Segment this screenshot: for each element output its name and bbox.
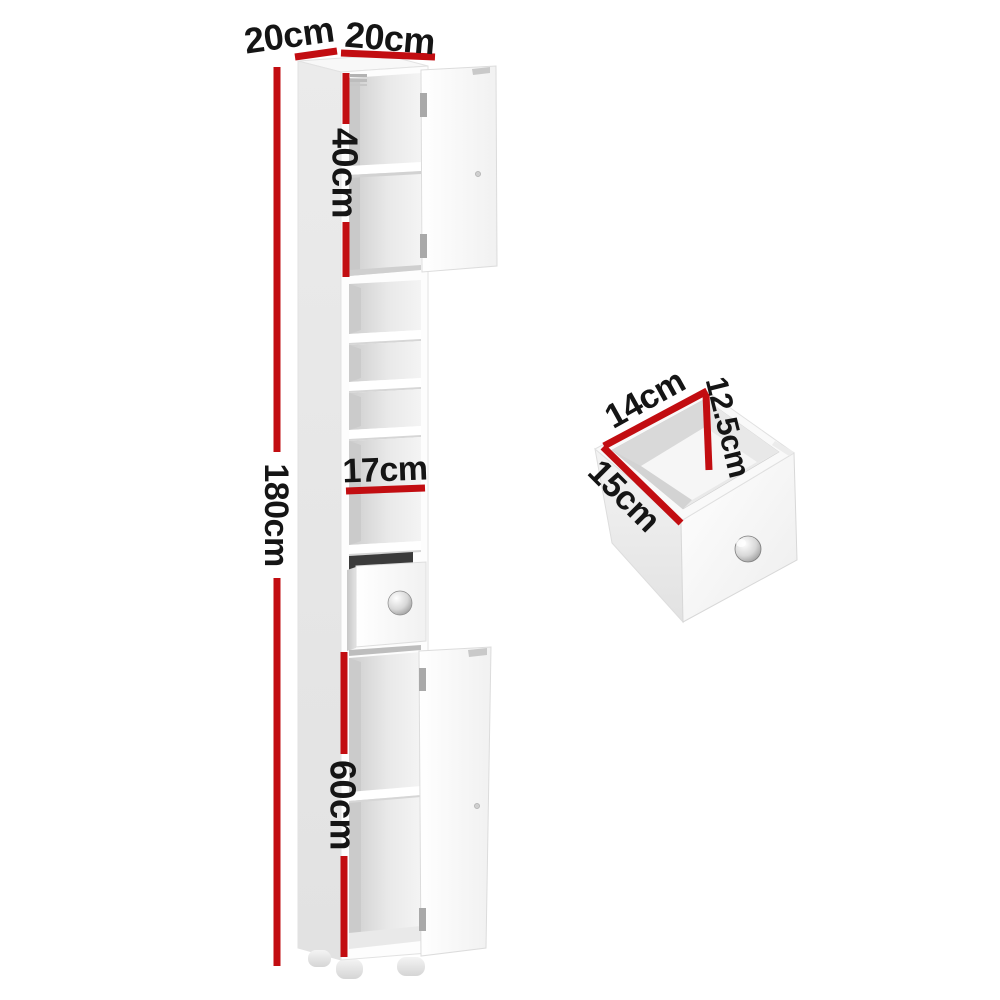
knob-highlight: [736, 539, 746, 547]
cabinet-foot: [308, 950, 331, 967]
door-handle-hole: [475, 171, 480, 176]
lower-door-open: [419, 647, 491, 956]
hinge-icon: [420, 234, 427, 258]
cabinet-foot: [336, 959, 363, 979]
lower-door-panel: [419, 647, 491, 956]
upper-door-open: [420, 66, 497, 272]
label-upper-door-height: 40cm: [325, 128, 366, 218]
hinge-icon: [419, 668, 426, 691]
hinge-icon: [419, 908, 426, 931]
diagram-canvas: 20cm 20cm 40cm 180cm 17cm 60cm 14cm 12.5…: [0, 0, 1000, 1000]
open-shelf-section: [349, 280, 421, 556]
compartment-left-wall: [349, 284, 361, 334]
door-handle-hole: [474, 803, 479, 808]
hinge-icon: [420, 93, 427, 117]
cabinet-drawer-open: [347, 552, 426, 656]
label-overall-height: 180cm: [257, 463, 295, 566]
drawer-knob: [388, 591, 412, 615]
cabinet-foot: [397, 957, 425, 976]
compartment-left-wall: [349, 393, 361, 430]
drawer-side-panel: [347, 567, 356, 651]
label-middle-shelf-height: 17cm: [342, 450, 428, 491]
label-lower-door-height: 60cm: [323, 760, 364, 850]
hinge-plate-icon: [350, 74, 367, 86]
compartment-left-wall: [349, 345, 361, 382]
label-top-width: 20cm: [343, 14, 436, 63]
dimension-diagram: 20cm 20cm 40cm 180cm 17cm 60cm 14cm 12.5…: [0, 0, 1000, 1000]
upper-door-panel: [421, 66, 497, 272]
